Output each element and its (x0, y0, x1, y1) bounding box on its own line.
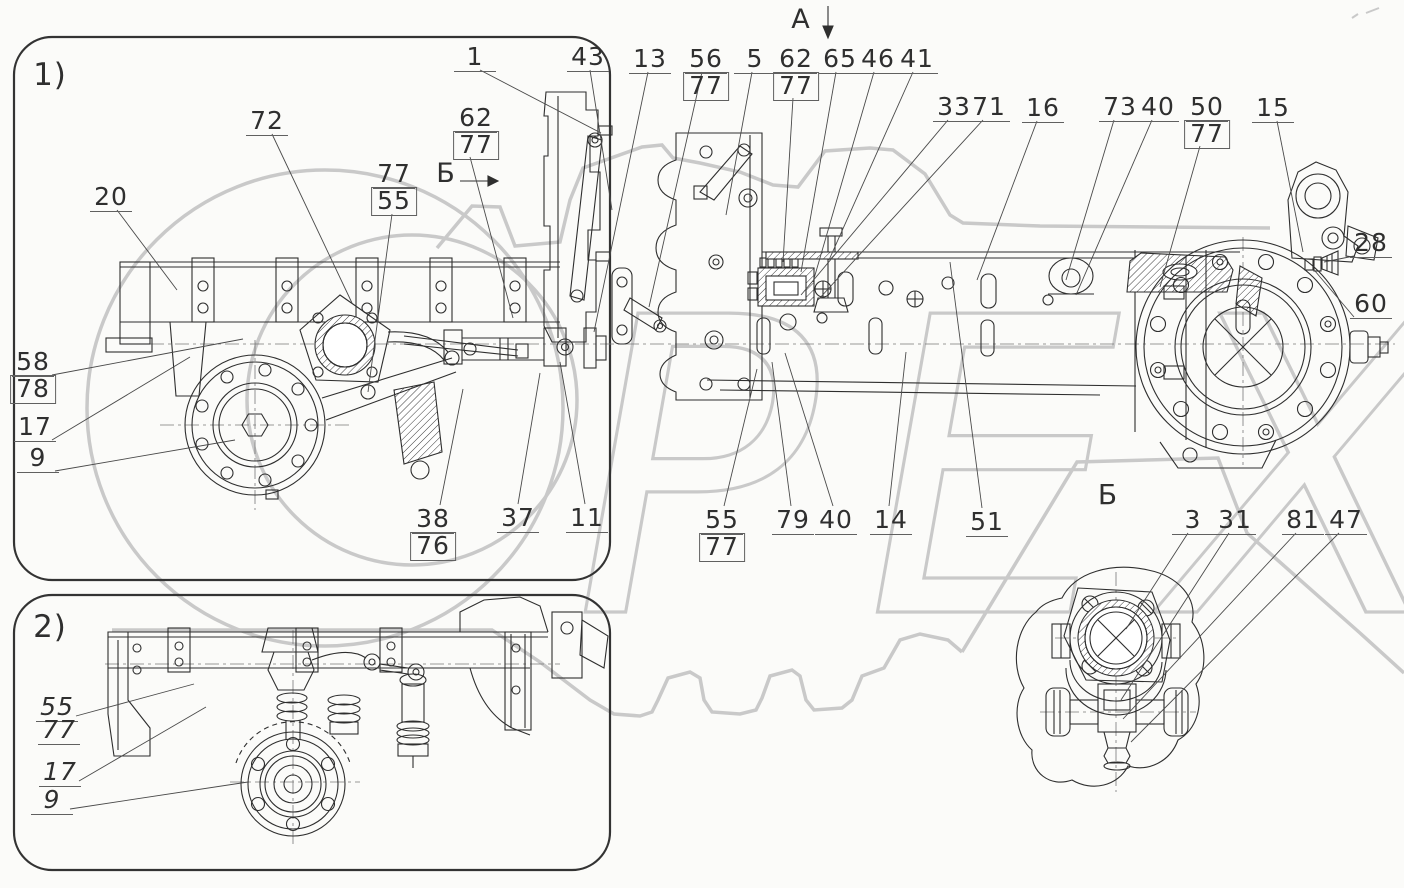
leader-c9i (70, 782, 248, 809)
front-axle-view2 (108, 597, 608, 836)
leader-c37 (518, 373, 540, 504)
arrow-b-head (488, 176, 498, 186)
cardan-shaft (444, 328, 606, 368)
support-bracket (170, 322, 206, 396)
view-frames (14, 37, 610, 870)
arrow-a-head (823, 26, 833, 38)
parts-diagram-page: РЕХ (0, 0, 1404, 888)
leader-c17 (52, 357, 190, 440)
hub-nut (1104, 748, 1130, 763)
watermark-text: РЕХ (528, 232, 1404, 709)
brake-drum (394, 382, 442, 464)
axle-assembly-drawing: РЕХ (0, 0, 1404, 888)
leader-c38 (440, 389, 463, 505)
release-lever (570, 136, 602, 300)
section-arrows (460, 6, 833, 186)
leader-c43 (590, 70, 612, 210)
leader-c55i (76, 684, 194, 716)
leader-c72 (272, 134, 352, 303)
view2-frame (14, 595, 610, 870)
leader-c1 (480, 70, 601, 133)
